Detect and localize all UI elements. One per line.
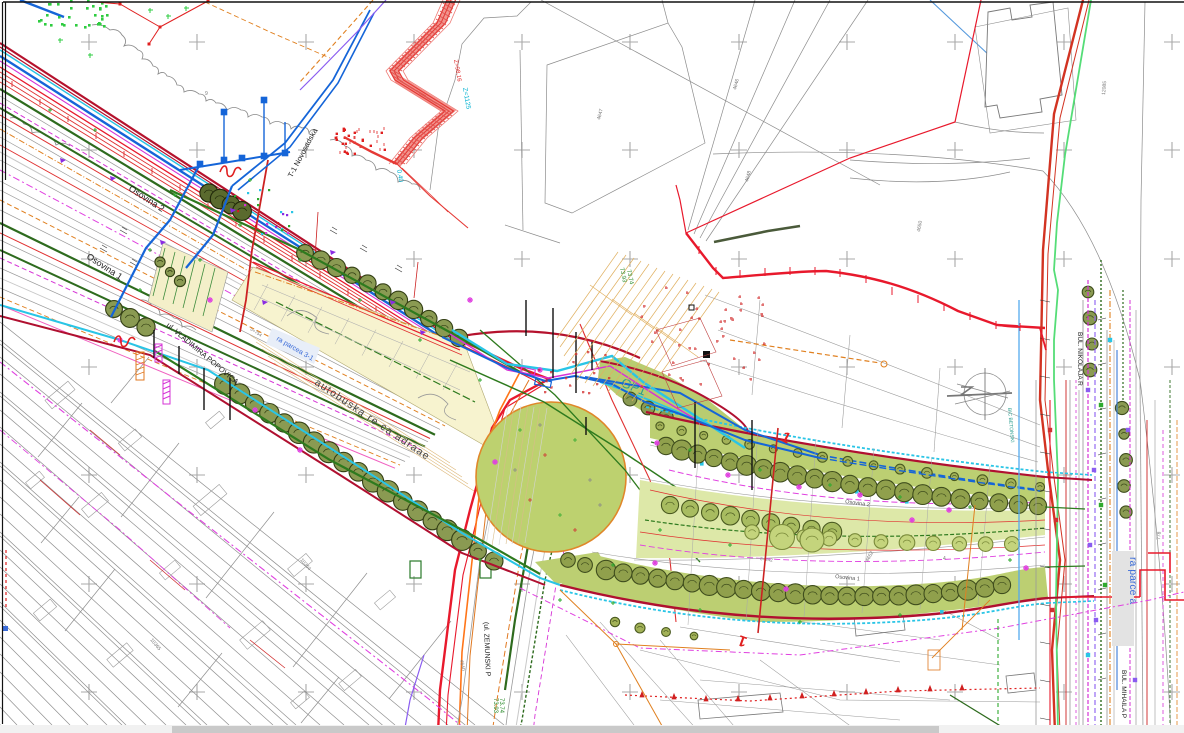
- svg-text:12085: 12085: [1101, 81, 1108, 96]
- svg-text:BUL. NIKOLAJA R: BUL. NIKOLAJA R: [1076, 332, 1083, 386]
- svg-text:4: 4: [943, 556, 946, 562]
- svg-text:778: 778: [1156, 531, 1163, 540]
- svg-text:9: 9: [205, 91, 208, 97]
- svg-text:73.74: 73.74: [498, 698, 504, 714]
- svg-text:73.93: 73.93: [492, 698, 498, 714]
- svg-text:BUL. MIHAILA P: BUL. MIHAILA P: [1120, 670, 1127, 718]
- svg-text:ra parce a: ra parce a: [1127, 557, 1139, 604]
